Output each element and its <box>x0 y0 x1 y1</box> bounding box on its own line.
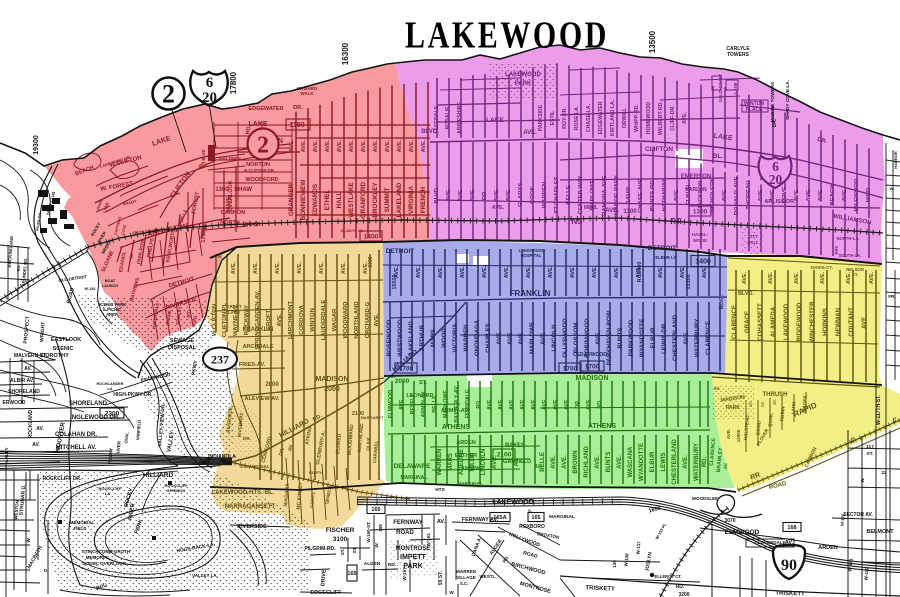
svg-text:WOODSLEE: WOODSLEE <box>692 496 718 501</box>
svg-text:AVE.: AVE. <box>498 397 504 409</box>
svg-text:AVE.: AVE. <box>506 188 512 202</box>
svg-text:VICTORIA: VICTORIA <box>452 323 459 353</box>
svg-text:1400: 1400 <box>364 233 379 240</box>
svg-text:AVE.: AVE. <box>614 265 620 278</box>
svg-text:WALK: WALK <box>300 91 314 96</box>
svg-text:DR.: DR. <box>772 118 778 127</box>
svg-text:AVE.: AVE. <box>494 188 500 202</box>
svg-text:AVE.: AVE. <box>297 261 303 274</box>
svg-text:AVE.: AVE. <box>658 265 664 278</box>
svg-text:THRUSH: THRUSH <box>763 392 788 398</box>
svg-text:BROWN: BROWN <box>573 450 579 473</box>
svg-text:COUTANT: COUTANT <box>848 307 855 337</box>
svg-text:AVE.: AVE. <box>682 112 688 124</box>
svg-text:MERL: MERL <box>584 205 598 211</box>
svg-text:165A: 165A <box>493 515 506 521</box>
svg-text:WASCANA: WASCANA <box>628 446 634 478</box>
svg-text:GOLD-COAST: GOLD-COAST <box>718 73 723 102</box>
svg-text:HARLON: HARLON <box>685 187 707 193</box>
svg-text:AVE.: AVE. <box>373 139 379 152</box>
svg-text:AVE.: AVE. <box>319 261 325 274</box>
svg-text:AVE.: AVE. <box>301 139 307 152</box>
svg-text:AVE.: AVE. <box>349 139 355 152</box>
svg-text:ORWILL: ORWILL <box>622 107 628 128</box>
svg-text:AVE.: AVE. <box>397 139 403 152</box>
svg-text:MADISON: MADISON <box>575 375 608 382</box>
svg-text:BAXTERLY-AV.: BAXTERLY-AV. <box>454 385 460 423</box>
svg-text:WESTWOOD: WESTWOOD <box>397 319 404 357</box>
svg-text:FERNDALE: FERNDALE <box>465 389 471 418</box>
svg-text:LA: LA <box>107 387 112 391</box>
svg-text:AVE.: AVE. <box>683 455 689 469</box>
svg-text:COOK: COOK <box>530 185 536 203</box>
svg-text:D MARGINAL: D MARGINAL <box>240 464 270 469</box>
svg-text:CREST: CREST <box>226 304 242 309</box>
svg-text:DETROIT: DETROIT <box>386 248 415 255</box>
svg-text:GRACE: GRACE <box>744 311 751 333</box>
svg-text:ROCKCLIFF DR.: ROCKCLIFF DR. <box>43 476 82 482</box>
svg-text:MARS: MARS <box>448 453 454 471</box>
svg-text:GRANGER: GRANGER <box>288 183 295 216</box>
svg-text:CLIFTON: CLIFTON <box>645 146 673 153</box>
svg-text:SCENIC OVERLOOK: SCENIC OVERLOOK <box>82 561 127 566</box>
svg-text:AVE.: AVE. <box>726 429 731 439</box>
svg-text:ROSALIE: ROSALIE <box>445 106 451 130</box>
svg-text:AVE.: AVE. <box>487 397 493 409</box>
svg-text:117: 117 <box>866 444 874 450</box>
svg-text:AVE.: AVE. <box>460 265 466 278</box>
svg-text:W.: W. <box>860 478 865 483</box>
svg-text:FIELD: FIELD <box>74 526 88 531</box>
svg-text:TRISKETT: TRISKETT <box>775 590 805 597</box>
svg-text:ELBUR LA: ELBUR LA <box>655 255 676 260</box>
svg-text:ST.: ST. <box>760 401 765 407</box>
svg-text:1700: 1700 <box>563 365 578 372</box>
svg-text:HOPKINS: HOPKINS <box>822 308 829 336</box>
svg-text:165: 165 <box>531 515 540 521</box>
svg-text:ARDEN: ARDEN <box>456 440 476 446</box>
svg-text:ST.: ST. <box>419 380 427 386</box>
svg-text:CORDOVA: CORDOVA <box>299 304 305 334</box>
svg-text:AVE.: AVE. <box>553 397 559 409</box>
svg-text:DR.: DR. <box>575 399 581 409</box>
svg-text:1300: 1300 <box>623 209 637 215</box>
svg-text:CHASE-AVE.: CHASE-AVE. <box>638 177 644 213</box>
svg-text:AVE.: AVE. <box>509 397 515 409</box>
svg-text:BLVD: BLVD <box>201 149 206 160</box>
svg-text:ROCKLAND: ROCKLAND <box>28 409 34 438</box>
svg-text:AVE.: AVE. <box>562 455 568 469</box>
svg-text:WOODWARD: WOODWARD <box>343 302 349 339</box>
svg-text:MARGARET: MARGARET <box>360 415 384 420</box>
svg-text:VALLEY LA.: VALLEY LA. <box>192 573 218 578</box>
svg-text:SHORELAND: SHORELAND <box>69 401 108 407</box>
svg-text:ARTHUR: ARTHUR <box>419 325 426 351</box>
svg-text:AV.: AV. <box>24 366 32 372</box>
svg-text:WATERBURY: WATERBURY <box>694 319 701 358</box>
svg-text:2: 2 <box>162 80 175 109</box>
svg-text:W.: W. <box>374 542 379 547</box>
svg-text:AVE.: AVE. <box>399 397 405 409</box>
svg-text:SECTOR AV.: SECTOR AV. <box>843 512 873 518</box>
svg-text:AREA: AREA <box>106 312 118 317</box>
svg-text:AVE.: AVE. <box>325 139 331 152</box>
svg-text:12800: 12800 <box>736 429 741 442</box>
svg-text:RD.: RD. <box>702 457 708 468</box>
svg-text:DISPOSAL: DISPOSAL <box>168 345 197 351</box>
svg-text:PARK: PARK <box>403 563 422 570</box>
svg-text:FISCHER: FISCHER <box>326 527 355 534</box>
svg-text:HALL: HALL <box>336 191 343 208</box>
svg-text:NORTH-LA.: NORTH-LA. <box>836 236 859 241</box>
svg-text:DELAWARE: DELAWARE <box>394 463 432 470</box>
svg-text:AVE.: AVE. <box>523 130 537 136</box>
svg-text:ROSE LA.: ROSE LA. <box>574 105 580 130</box>
svg-text:AV.: AV. <box>723 462 729 469</box>
svg-text:FRANKLIN: FRANKLIN <box>510 289 551 298</box>
svg-text:SHADY COVE LA.: SHADY COVE LA. <box>785 80 790 120</box>
svg-text:LAKELAND: LAKELAND <box>408 321 415 355</box>
svg-text:HATHAWAY: HATHAWAY <box>662 179 668 212</box>
svg-text:IMPETT: IMPETT <box>400 554 426 561</box>
svg-text:SHORELAND: SHORELAND <box>8 389 40 395</box>
svg-text:DOROTHY: DOROTHY <box>41 353 69 359</box>
svg-text:LAKEWOOD: LAKEWOOD <box>783 303 790 340</box>
svg-text:LA.: LA. <box>105 491 111 496</box>
svg-text:OVAL: OVAL <box>124 432 130 444</box>
svg-text:MARGINAL: MARGINAL <box>401 475 428 481</box>
svg-text:BAYES: BAYES <box>505 443 525 449</box>
svg-text:ONONDAGA: ONONDAGA <box>474 319 481 356</box>
svg-text:CRANFORD: CRANFORD <box>360 182 367 218</box>
svg-text:AVE.: AVE. <box>551 455 557 469</box>
svg-text:LEONARD: LEONARD <box>406 393 433 399</box>
svg-text:AVE.: AVE. <box>374 313 380 327</box>
svg-text:WESTLAKE: WESTLAKE <box>348 182 355 217</box>
svg-text:WINCHESTER: WINCHESTER <box>809 301 816 343</box>
svg-text:LAUNCH: LAUNCH <box>102 284 118 288</box>
svg-text:PARKWOOD: PARKWOOD <box>628 319 635 356</box>
svg-text:AVE.: AVE. <box>385 139 391 152</box>
svg-text:AVE.: AVE. <box>482 265 488 278</box>
svg-text:AVE.: AVE. <box>617 455 623 469</box>
svg-text:ESTHER: ESTHER <box>455 453 477 459</box>
svg-text:3100: 3100 <box>333 536 348 543</box>
svg-text:WAGAR: WAGAR <box>332 308 338 331</box>
svg-text:AVE.: AVE. <box>507 331 514 345</box>
svg-text:BLVD.: BLVD. <box>738 291 755 297</box>
svg-text:LEWIS: LEWIS <box>661 453 667 472</box>
svg-text:PARK: PARK <box>726 405 741 411</box>
svg-text:CHARLES: CHARLES <box>485 323 492 352</box>
svg-text:1300: 1300 <box>693 208 708 215</box>
svg-text:NORTH: NORTH <box>309 470 323 475</box>
svg-text:AVE.: AVE. <box>531 397 537 409</box>
svg-text:AVE.: AVE. <box>595 331 602 345</box>
svg-text:CLARENCE: CLARENCE <box>731 305 738 339</box>
svg-text:ELMWOOD: ELMWOOD <box>388 390 394 418</box>
svg-text:MEMORIAL: MEMORIAL <box>70 520 95 525</box>
svg-text:EMERSON: EMERSON <box>681 174 711 180</box>
svg-text:AVE.: AVE. <box>277 313 283 327</box>
svg-text:AV.: AV. <box>534 464 542 470</box>
svg-text:2: 2 <box>257 133 269 159</box>
svg-text:3200: 3200 <box>678 592 689 597</box>
svg-text:FRIES-AV.: FRIES-AV. <box>239 362 266 368</box>
svg-text:FERNWAY: FERNWAY <box>393 520 422 526</box>
svg-text:237: 237 <box>211 353 229 367</box>
svg-text:MEMORIAL: MEMORIAL <box>86 555 111 560</box>
svg-text:PILGRIM-RD.: PILGRIM-RD. <box>304 546 336 552</box>
svg-text:EDGEWATER: EDGEWATER <box>248 106 283 112</box>
svg-text:PARKSIDE: PARKSIDE <box>538 104 544 131</box>
svg-text:LEWIS-DR.: LEWIS-DR. <box>661 322 668 354</box>
svg-text:ARLEY: ARLEY <box>4 447 9 462</box>
svg-text:55 ST.: 55 ST. <box>438 570 444 585</box>
svg-text:14100: 14100 <box>626 186 632 203</box>
svg-text:CHESTERLAND: CHESTERLAND <box>672 314 679 361</box>
svg-text:BUNTS-RD.: BUNTS-RD. <box>650 178 656 211</box>
svg-text:AVE.: AVE. <box>409 139 415 152</box>
svg-text:VILLAGE: VILLAGE <box>456 575 476 580</box>
svg-text:13100: 13100 <box>686 274 692 289</box>
svg-text:HARBOR: HARBOR <box>893 151 898 169</box>
svg-text:AV.: AV. <box>714 386 721 391</box>
svg-text:CLARENCE: CLARENCE <box>705 321 712 355</box>
svg-text:AVE.: AVE. <box>341 261 347 274</box>
svg-text:139: 139 <box>612 560 617 568</box>
svg-text:19300: 19300 <box>33 135 40 155</box>
svg-text:BEACH: BEACH <box>830 185 836 206</box>
svg-text:17000: 17000 <box>201 227 207 242</box>
svg-text:WOODFORD: WOODFORD <box>245 177 278 183</box>
svg-text:HAZEL-: HAZEL- <box>692 232 709 237</box>
svg-text:AVE.: AVE. <box>570 265 576 278</box>
svg-text:NEWMAN: NEWMAN <box>835 308 842 336</box>
svg-text:165: 165 <box>347 571 356 577</box>
svg-text:2100: 2100 <box>497 451 512 458</box>
svg-text:15500: 15500 <box>392 274 398 289</box>
svg-text:WARREN: WARREN <box>456 569 476 574</box>
svg-text:16300: 16300 <box>341 42 350 65</box>
svg-text:BELMONT: BELMONT <box>866 529 894 535</box>
svg-text:ALDEN: ALDEN <box>364 561 381 567</box>
svg-text:AVE.: AVE. <box>768 271 774 284</box>
svg-text:WATERBURY: WATERBURY <box>694 443 700 481</box>
svg-text:AVE.: AVE. <box>458 188 464 202</box>
svg-text:H.CLIFTON DR: H.CLIFTON DR <box>244 168 273 173</box>
svg-text:1400: 1400 <box>695 259 711 266</box>
svg-text:2000: 2000 <box>265 382 279 388</box>
svg-text:ARDEN: ARDEN <box>818 545 838 551</box>
svg-text:GLADYS: GLADYS <box>518 183 524 208</box>
svg-text:CLOVERDALE: CLOVERDALE <box>754 540 785 545</box>
svg-text:ERWOOD: ERWOOD <box>3 400 26 406</box>
svg-text:168: 168 <box>787 525 796 531</box>
svg-text:COHASSETT: COHASSETT <box>757 303 764 341</box>
svg-text:AVE.: AVE. <box>742 271 748 284</box>
svg-text:17800: 17800 <box>229 71 238 94</box>
svg-text:AVE.: AVE. <box>470 188 476 202</box>
svg-text:RD.: RD. <box>676 584 685 590</box>
svg-text:DONALD-AVE.: DONALD-AVE. <box>734 174 740 215</box>
svg-text:PARKHAVEN-ROW: PARKHAVEN-ROW <box>606 310 613 365</box>
svg-text:BLVD.: BLVD. <box>421 129 439 135</box>
svg-text:AV.: AV. <box>32 442 40 448</box>
svg-text:W.: W. <box>449 590 454 595</box>
svg-text:AVE.: AVE. <box>438 265 444 278</box>
svg-text:MARGINAL: MARGINAL <box>549 514 575 520</box>
svg-text:LANNING: LANNING <box>457 466 482 472</box>
svg-text:AVE.: AVE. <box>605 208 619 214</box>
svg-text:CHASE-LA.: CHASE-LA. <box>586 103 592 132</box>
svg-text:SPRINGGARDEN-AV.: SPRINGGARDEN-AV. <box>255 290 261 349</box>
svg-text:AVE.: AVE. <box>861 315 868 329</box>
svg-text:ALAMEDA: ALAMEDA <box>770 306 777 337</box>
svg-text:ST.: ST. <box>340 549 345 556</box>
svg-text:LAKEWOOD: LAKEWOOD <box>505 72 541 78</box>
svg-text:LANE: LANE <box>733 82 738 94</box>
svg-text:TOWERS: TOWERS <box>727 52 750 58</box>
svg-text:ELBUR: ELBUR <box>650 327 657 349</box>
svg-text:AV.: AV. <box>437 519 446 525</box>
svg-text:ROAD: ROAD <box>396 530 414 536</box>
svg-text:WYANDOTTE: WYANDOTTE <box>639 319 646 358</box>
svg-text:20: 20 <box>769 172 783 187</box>
svg-text:AVE.: AVE. <box>520 397 526 409</box>
svg-text:AVE.: AVE. <box>275 261 281 274</box>
svg-text:AVE.: AVE. <box>416 265 422 278</box>
svg-text:CITY: CITY <box>748 234 758 239</box>
svg-text:BELLE: BELLE <box>566 185 572 204</box>
svg-text:AVE.: AVE. <box>337 139 343 152</box>
svg-text:ELMWOOD: ELMWOOD <box>725 529 760 536</box>
svg-text:AVE.: AVE. <box>542 397 548 409</box>
svg-text:FRANKLIN: FRANKLIN <box>243 327 274 333</box>
svg-text:PARK: PARK <box>515 81 532 87</box>
svg-text:165: 165 <box>371 507 380 513</box>
svg-text:AVE.: AVE. <box>674 188 680 202</box>
svg-text:MARS: MARS <box>430 329 437 347</box>
svg-text:BLVD.: BLVD. <box>719 294 725 309</box>
svg-text:S.C.: S.C. <box>460 581 468 586</box>
svg-text:AVE.: AVE. <box>421 139 427 152</box>
svg-text:ROY-DR.: ROY-DR. <box>562 107 568 129</box>
svg-text:ROCHLANDER: ROCHLANDER <box>97 382 124 386</box>
svg-text:EASTLOOK: EASTLOOK <box>51 337 82 343</box>
svg-text:AVE.: AVE. <box>540 331 547 345</box>
svg-text:ELBUR: ELBUR <box>650 451 656 472</box>
svg-text:BL.: BL. <box>713 153 724 160</box>
svg-text:3070: 3070 <box>724 518 735 524</box>
svg-text:HILLIARD: HILLIARD <box>143 472 174 479</box>
svg-text:ARCHDALE: ARCHDALE <box>243 344 274 350</box>
svg-text:EDGEWATER: EDGEWATER <box>598 101 604 134</box>
svg-text:LANE: LANE <box>228 310 240 315</box>
svg-text:ATHENS: ATHENS <box>588 423 617 430</box>
svg-text:1100: 1100 <box>289 122 304 129</box>
svg-text:HALL: HALL <box>747 240 759 245</box>
svg-text:RIDGEWOOD: RIDGEWOOD <box>796 302 803 342</box>
svg-text:ST.: ST. <box>352 547 357 554</box>
svg-text:THOREAU: THOREAU <box>746 180 752 209</box>
svg-text:BOAT: BOAT <box>105 279 116 283</box>
svg-text:MADISON: MADISON <box>315 376 348 383</box>
svg-text:JACKSON: JACKSON <box>698 181 704 210</box>
svg-text:R.13600: R.13600 <box>637 262 643 283</box>
svg-text:IDLEWOOD: IDLEWOOD <box>854 179 860 211</box>
svg-text:W-192: W-192 <box>84 287 95 291</box>
svg-text:SPRINGS: SPRINGS <box>167 488 185 493</box>
svg-text:CT.: CT. <box>852 272 858 277</box>
svg-text:AVE.: AVE. <box>818 188 824 202</box>
svg-text:ELLEROY CT.: ELLEROY CT. <box>654 574 681 579</box>
svg-text:BROCKLEY: BROCKLEY <box>372 182 379 218</box>
svg-text:WINTON: WINTON <box>310 308 316 332</box>
svg-text:W-117TH-ST.: W-117TH-ST. <box>876 394 882 425</box>
svg-text:AVE.: AVE. <box>492 205 505 211</box>
svg-text:W.: W. <box>26 537 31 543</box>
svg-text:WILBERT-RD.: WILBERT-RD. <box>658 100 664 135</box>
svg-text:AVE.: AVE. <box>518 331 525 345</box>
svg-text:STINCHCOMB-GROTH: STINCHCOMB-GROTH <box>82 549 130 554</box>
svg-text:AVE.: AVE. <box>526 265 532 278</box>
svg-text:DR.: DR. <box>293 105 303 111</box>
svg-text:ETHEL: ETHEL <box>324 190 331 211</box>
svg-text:BLVD.: BLVD. <box>434 186 440 204</box>
svg-text:ST.: ST. <box>748 401 753 407</box>
svg-text:ROSEWOOD: ROSEWOOD <box>386 319 393 357</box>
svg-text:AVE.: AVE. <box>758 188 764 202</box>
svg-text:AVE.: AVE. <box>806 188 812 202</box>
svg-text:CHESTERLAND: CHESTERLAND <box>672 439 678 485</box>
svg-text:MONTROSE: MONTROSE <box>396 546 431 552</box>
svg-text:FRENCH: FRENCH <box>420 186 427 213</box>
svg-text:KIRTLAND LA.: KIRTLAND LA. <box>610 99 616 136</box>
svg-text:1700: 1700 <box>585 363 600 370</box>
svg-text:HOSPITAL: HOSPITAL <box>521 253 542 258</box>
svg-text:AVE.: AVE. <box>722 188 728 202</box>
svg-text:ESTIL: ESTIL <box>550 110 556 126</box>
svg-text:BLOSSOM: BLOSSOM <box>573 323 580 354</box>
svg-text:RICHLAND: RICHLAND <box>584 446 590 478</box>
svg-text:SUMMIT: SUMMIT <box>384 187 391 212</box>
svg-text:AV.: AV. <box>36 426 44 432</box>
svg-text:W.: W. <box>890 186 895 191</box>
svg-text:LARCHMONT: LARCHMONT <box>288 301 294 339</box>
svg-text:SHAW: SHAW <box>234 187 252 193</box>
svg-text:AVE.: AVE. <box>253 261 259 274</box>
svg-text:ALEVIEW-AV.: ALEVIEW-AV. <box>244 396 280 402</box>
svg-text:AVE.: AVE. <box>794 271 800 284</box>
svg-text:LAKE: LAKE <box>486 117 504 124</box>
svg-text:2000: 2000 <box>324 386 340 393</box>
svg-text:WYANDOTTE: WYANDOTTE <box>639 443 645 481</box>
svg-text:ABBIESHIRE: ABBIESHIRE <box>457 101 463 134</box>
svg-text:AVE.: AVE. <box>869 271 875 284</box>
svg-text:LEEDALE: LEEDALE <box>434 105 440 130</box>
svg-text:2000: 2000 <box>395 378 410 385</box>
svg-text:SEWAGE: SEWAGE <box>170 338 194 344</box>
svg-text:W-160-ST.: W-160-ST. <box>366 521 371 542</box>
svg-text:AVE.: AVE. <box>313 139 319 152</box>
svg-text:LAKELAND: LAKELAND <box>396 182 403 217</box>
svg-text:RD.: RD. <box>482 190 488 201</box>
svg-text:ARMIN-AV.: ARMIN-AV. <box>441 408 470 414</box>
svg-text:AVE.: AVE. <box>496 331 503 345</box>
svg-text:VIRGINIA: VIRGINIA <box>408 186 415 214</box>
svg-text:ST.CHARLES: ST.CHARLES <box>554 176 560 213</box>
